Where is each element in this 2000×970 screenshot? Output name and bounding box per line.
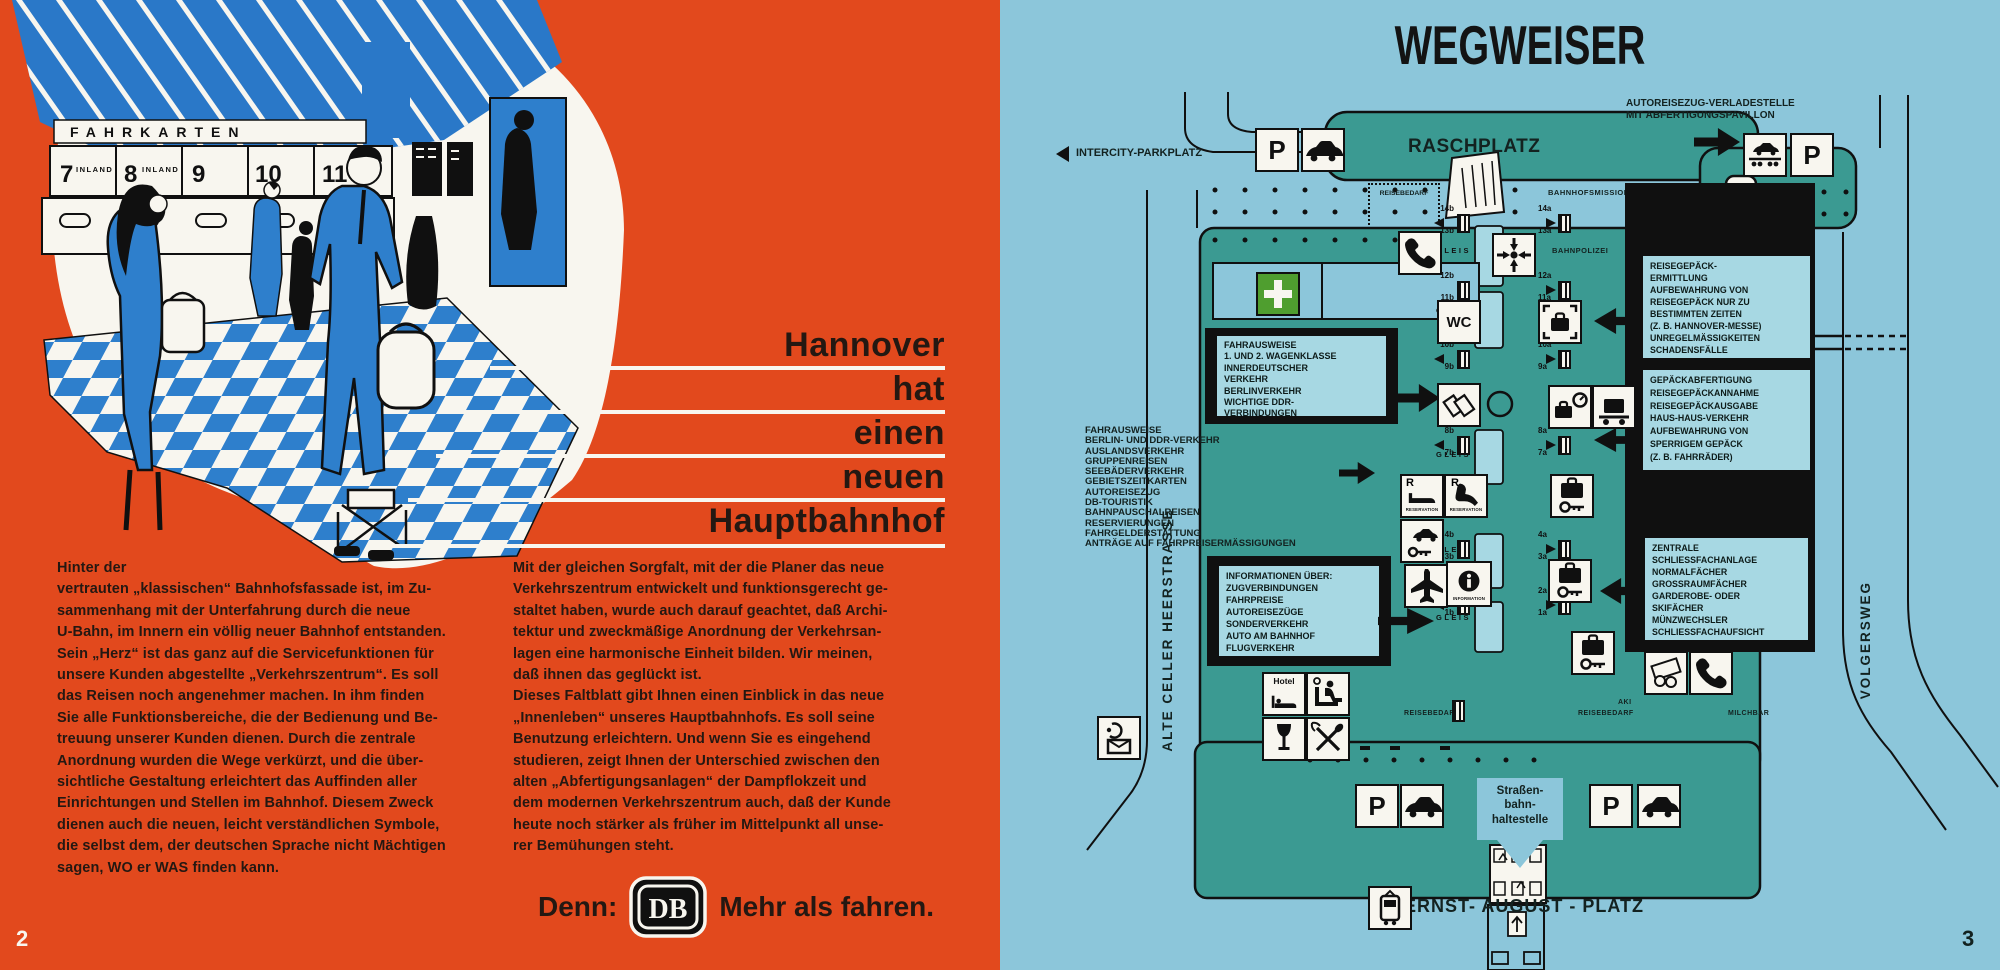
platform-number: 14a — [1538, 205, 1584, 213]
platform-number: 9a — [1538, 363, 1584, 371]
label-bahnpolizei: BAHNPOLIZEI — [1552, 246, 1608, 255]
body-column-2: Mit der gleichen Sorgfalt, mit der die P… — [513, 558, 950, 858]
bar-sign — [1262, 717, 1306, 761]
information-caption: INFORMATION — [1453, 597, 1485, 601]
fahrausweise-box: FAHRAUSWEISE 1. UND 2. WAGENKLASSE INNER… — [1205, 328, 1398, 424]
info-icon — [1450, 567, 1488, 597]
car-key-icon — [1402, 521, 1442, 561]
r-letter: R — [1406, 477, 1414, 489]
headline-line: hat — [893, 372, 946, 406]
body-column-1: Hinter der vertrauten „klassischen“ Bahn… — [57, 558, 494, 879]
headline-line: Hauptbahnhof — [709, 504, 945, 538]
svg-text:9: 9 — [192, 161, 205, 188]
reservation-caption: RESERVATION — [1406, 508, 1439, 512]
svg-text:INLAND: INLAND — [142, 165, 179, 174]
hotel-bed-icon — [1265, 685, 1303, 711]
post-horn-icon — [1099, 718, 1139, 758]
locker-sign — [1571, 631, 1615, 675]
headline-line: Hannover — [784, 328, 945, 362]
platform-number: 14b — [1408, 205, 1454, 213]
post-office-sign — [1097, 716, 1141, 760]
platform-number: 13a — [1538, 227, 1584, 235]
parking-sign: P — [1790, 133, 1834, 177]
seat-reservation-sign: R RESERVATION — [1444, 474, 1488, 518]
restaurant-sign — [1306, 717, 1350, 761]
waiting-room-sign — [1306, 672, 1350, 716]
door-figure — [490, 98, 566, 286]
slogan: Denn: DB Mehr als fahren. — [538, 876, 934, 938]
map-title: WEGWEISER — [1372, 18, 1667, 73]
label-reisebedarf: REISEBEDARF — [1380, 190, 1429, 198]
wc-sign: WC — [1437, 300, 1481, 344]
stairs-14b — [1457, 214, 1470, 233]
right-page: WEGWEISER RASCHPLATZ ERNST- AUGUST - PLA… — [1000, 0, 2000, 970]
left-page: FAHRKARTEN 7 INLAND 8 INLAND 9 10 11 — [0, 0, 1000, 970]
left-luggage-sign — [1538, 300, 1582, 344]
locker-icon — [1550, 561, 1590, 601]
gepaeckabfertigung-text: GEPÄCKABFERTIGUNG REISEGEPÄCKANNAHME REI… — [1643, 370, 1810, 470]
stairs-10b — [1457, 350, 1470, 369]
car-sign — [1400, 784, 1444, 828]
first-aid-cross-icon — [1258, 274, 1298, 314]
platform-number: 9b — [1408, 363, 1454, 371]
platform-number: 8b — [1408, 427, 1454, 435]
autoreisezug-sign — [1743, 133, 1787, 177]
imbiss-divider — [1321, 264, 1323, 318]
fahrausweise-list: FAHRAUSWEISE BERLIN- UND DDR-VERKEHR AUS… — [1085, 426, 1296, 550]
telephone-icon — [1691, 653, 1731, 693]
tram-stop-callout: Straßen- bahn- haltestelle — [1477, 778, 1563, 840]
station-hall-illustration: FAHRKARTEN 7 INLAND 8 INLAND 9 10 11 — [12, 0, 642, 580]
svg-text:11: 11 — [322, 161, 347, 188]
luggage-trolley-sign — [1592, 385, 1636, 429]
tram-icon — [1370, 888, 1410, 928]
p-letter: P — [1368, 793, 1385, 819]
stairs-8b — [1457, 436, 1470, 455]
car-sign — [1301, 128, 1345, 172]
reservation-caption: RESERVATION — [1450, 508, 1483, 512]
pedestrian-crossing — [1815, 336, 1906, 349]
platform-number: 1a — [1538, 609, 1584, 617]
db-logo-text: DB — [649, 894, 688, 925]
headline-line: einen — [854, 416, 945, 450]
wc-label: WC — [1447, 315, 1472, 330]
information-sign: INFORMATION — [1446, 561, 1492, 607]
r-letter: R — [1451, 477, 1459, 489]
flight-sign — [1404, 564, 1448, 608]
p-letter: P — [1803, 142, 1820, 168]
wine-glass-icon — [1264, 719, 1304, 759]
tram-sign — [1368, 886, 1412, 930]
locker-icon — [1552, 476, 1592, 516]
car-icon — [1402, 786, 1442, 826]
stairs-kiosk — [1452, 700, 1465, 722]
fahrausweise-box-text: FAHRAUSWEISE 1. UND 2. WAGENKLASSE INNER… — [1217, 336, 1386, 416]
label-intercity-parkplatz: INTERCITY-PARKPLATZ — [1076, 147, 1202, 160]
brochure-spread: FAHRKARTEN 7 INLAND 8 INLAND 9 10 11 — [0, 0, 2000, 970]
label-ernst-august-platz: ERNST- AUGUST - PLATZ — [1404, 896, 1644, 918]
car-sign — [1637, 784, 1681, 828]
car-icon — [1639, 786, 1679, 826]
cutlery-icon — [1308, 719, 1348, 759]
label-reisebedarf-3: REISEBEDARF — [1578, 710, 1634, 718]
car-icon — [1303, 130, 1343, 170]
page-number-left: 2 — [16, 926, 28, 952]
schliessfach-text: ZENTRALE SCHLIESSFACHANLAGE NORMALFÄCHER… — [1645, 538, 1808, 640]
label-raschplatz: RASCHPLATZ — [1408, 136, 1540, 159]
parking-sign: P — [1355, 784, 1399, 828]
intercity-parkplatz: INTERCITY-PARKPLATZ — [1056, 146, 1202, 162]
reisegepaeck-text: REISEGEPÄCK- ERMITTLUNG AUFBEWAHRUNG VON… — [1643, 256, 1810, 358]
label-volgersweg: VOLGERSWEG — [1858, 520, 1874, 760]
luggage-trolley-icon — [1594, 387, 1634, 427]
luggage-checkin-sign — [1548, 385, 1592, 429]
airplane-icon — [1406, 566, 1446, 606]
sleeper-reservation-sign: R RESERVATION — [1400, 474, 1444, 518]
gepaeck-block: REISEGEPÄCK- ERMITTLUNG AUFBEWAHRUNG VON… — [1625, 183, 1815, 652]
label-milchbar: MILCHBAR — [1728, 710, 1769, 718]
slogan-suffix: Mehr als fahren. — [719, 891, 934, 923]
svg-text:8: 8 — [124, 161, 137, 188]
parking-sign: P — [1589, 784, 1633, 828]
currency-exchange-sign — [1644, 651, 1688, 695]
tickets-icon — [1439, 385, 1479, 425]
fahrkarten-sign: FAHRKARTEN — [70, 124, 246, 140]
headline-line: neuen — [842, 460, 945, 494]
p-letter: P — [1602, 793, 1619, 819]
informationen-box-text: INFORMATIONEN ÜBER: ZUGVERBINDUNGEN FAHR… — [1219, 566, 1379, 656]
rental-car-sign — [1400, 519, 1444, 563]
meeting-point-icon — [1494, 235, 1534, 275]
svg-text:7: 7 — [60, 161, 73, 188]
hotel-label: Hotel — [1273, 677, 1294, 686]
track-fan — [1446, 152, 1504, 218]
suitcase-frame-icon — [1540, 302, 1580, 342]
label-autoreisezug: AUTOREISEZUG-VERLADESTELLE MIT ABFERTIGU… — [1626, 98, 1795, 122]
meeting-point-sign — [1492, 233, 1536, 277]
informationen-box: INFORMATIONEN ÜBER: ZUGVERBINDUNGEN FAHR… — [1207, 556, 1391, 666]
locker-icon — [1573, 633, 1613, 673]
svg-text:INLAND: INLAND — [76, 165, 113, 174]
locker-sign — [1548, 559, 1592, 603]
telephone-sign — [1689, 651, 1733, 695]
page-number-right: 3 — [1962, 926, 1974, 952]
platform-number: 7b — [1408, 449, 1454, 457]
telephone-icon — [1400, 233, 1440, 273]
headline-rule — [380, 544, 945, 548]
waiting-lounge-icon — [1308, 674, 1348, 714]
p-letter: P — [1268, 137, 1285, 163]
platform-number: 12a — [1538, 272, 1584, 280]
label-bahnhofsmission: BAHNHOFSMISSION — [1548, 188, 1630, 197]
first-aid-sign — [1256, 272, 1300, 316]
slogan-prefix: Denn: — [538, 891, 617, 923]
platform-number: 4a — [1538, 531, 1584, 539]
car-on-train-icon — [1745, 135, 1785, 175]
db-logo: DB — [629, 876, 707, 938]
arrow-left-icon — [1056, 146, 1069, 162]
platform-number: 7a — [1538, 449, 1584, 457]
telephone-sign — [1398, 231, 1442, 275]
suitcase-scale-icon — [1550, 387, 1590, 427]
parking-sign: P — [1255, 128, 1299, 172]
label-aki: AKI — [1618, 699, 1632, 707]
money-icon — [1646, 653, 1686, 693]
hotel-sign: Hotel — [1262, 672, 1306, 716]
stairs-12b — [1457, 281, 1470, 300]
locker-sign — [1550, 474, 1594, 518]
headline-rule — [490, 366, 945, 370]
tickets-sign — [1437, 383, 1481, 427]
stairs-4b — [1457, 540, 1470, 559]
